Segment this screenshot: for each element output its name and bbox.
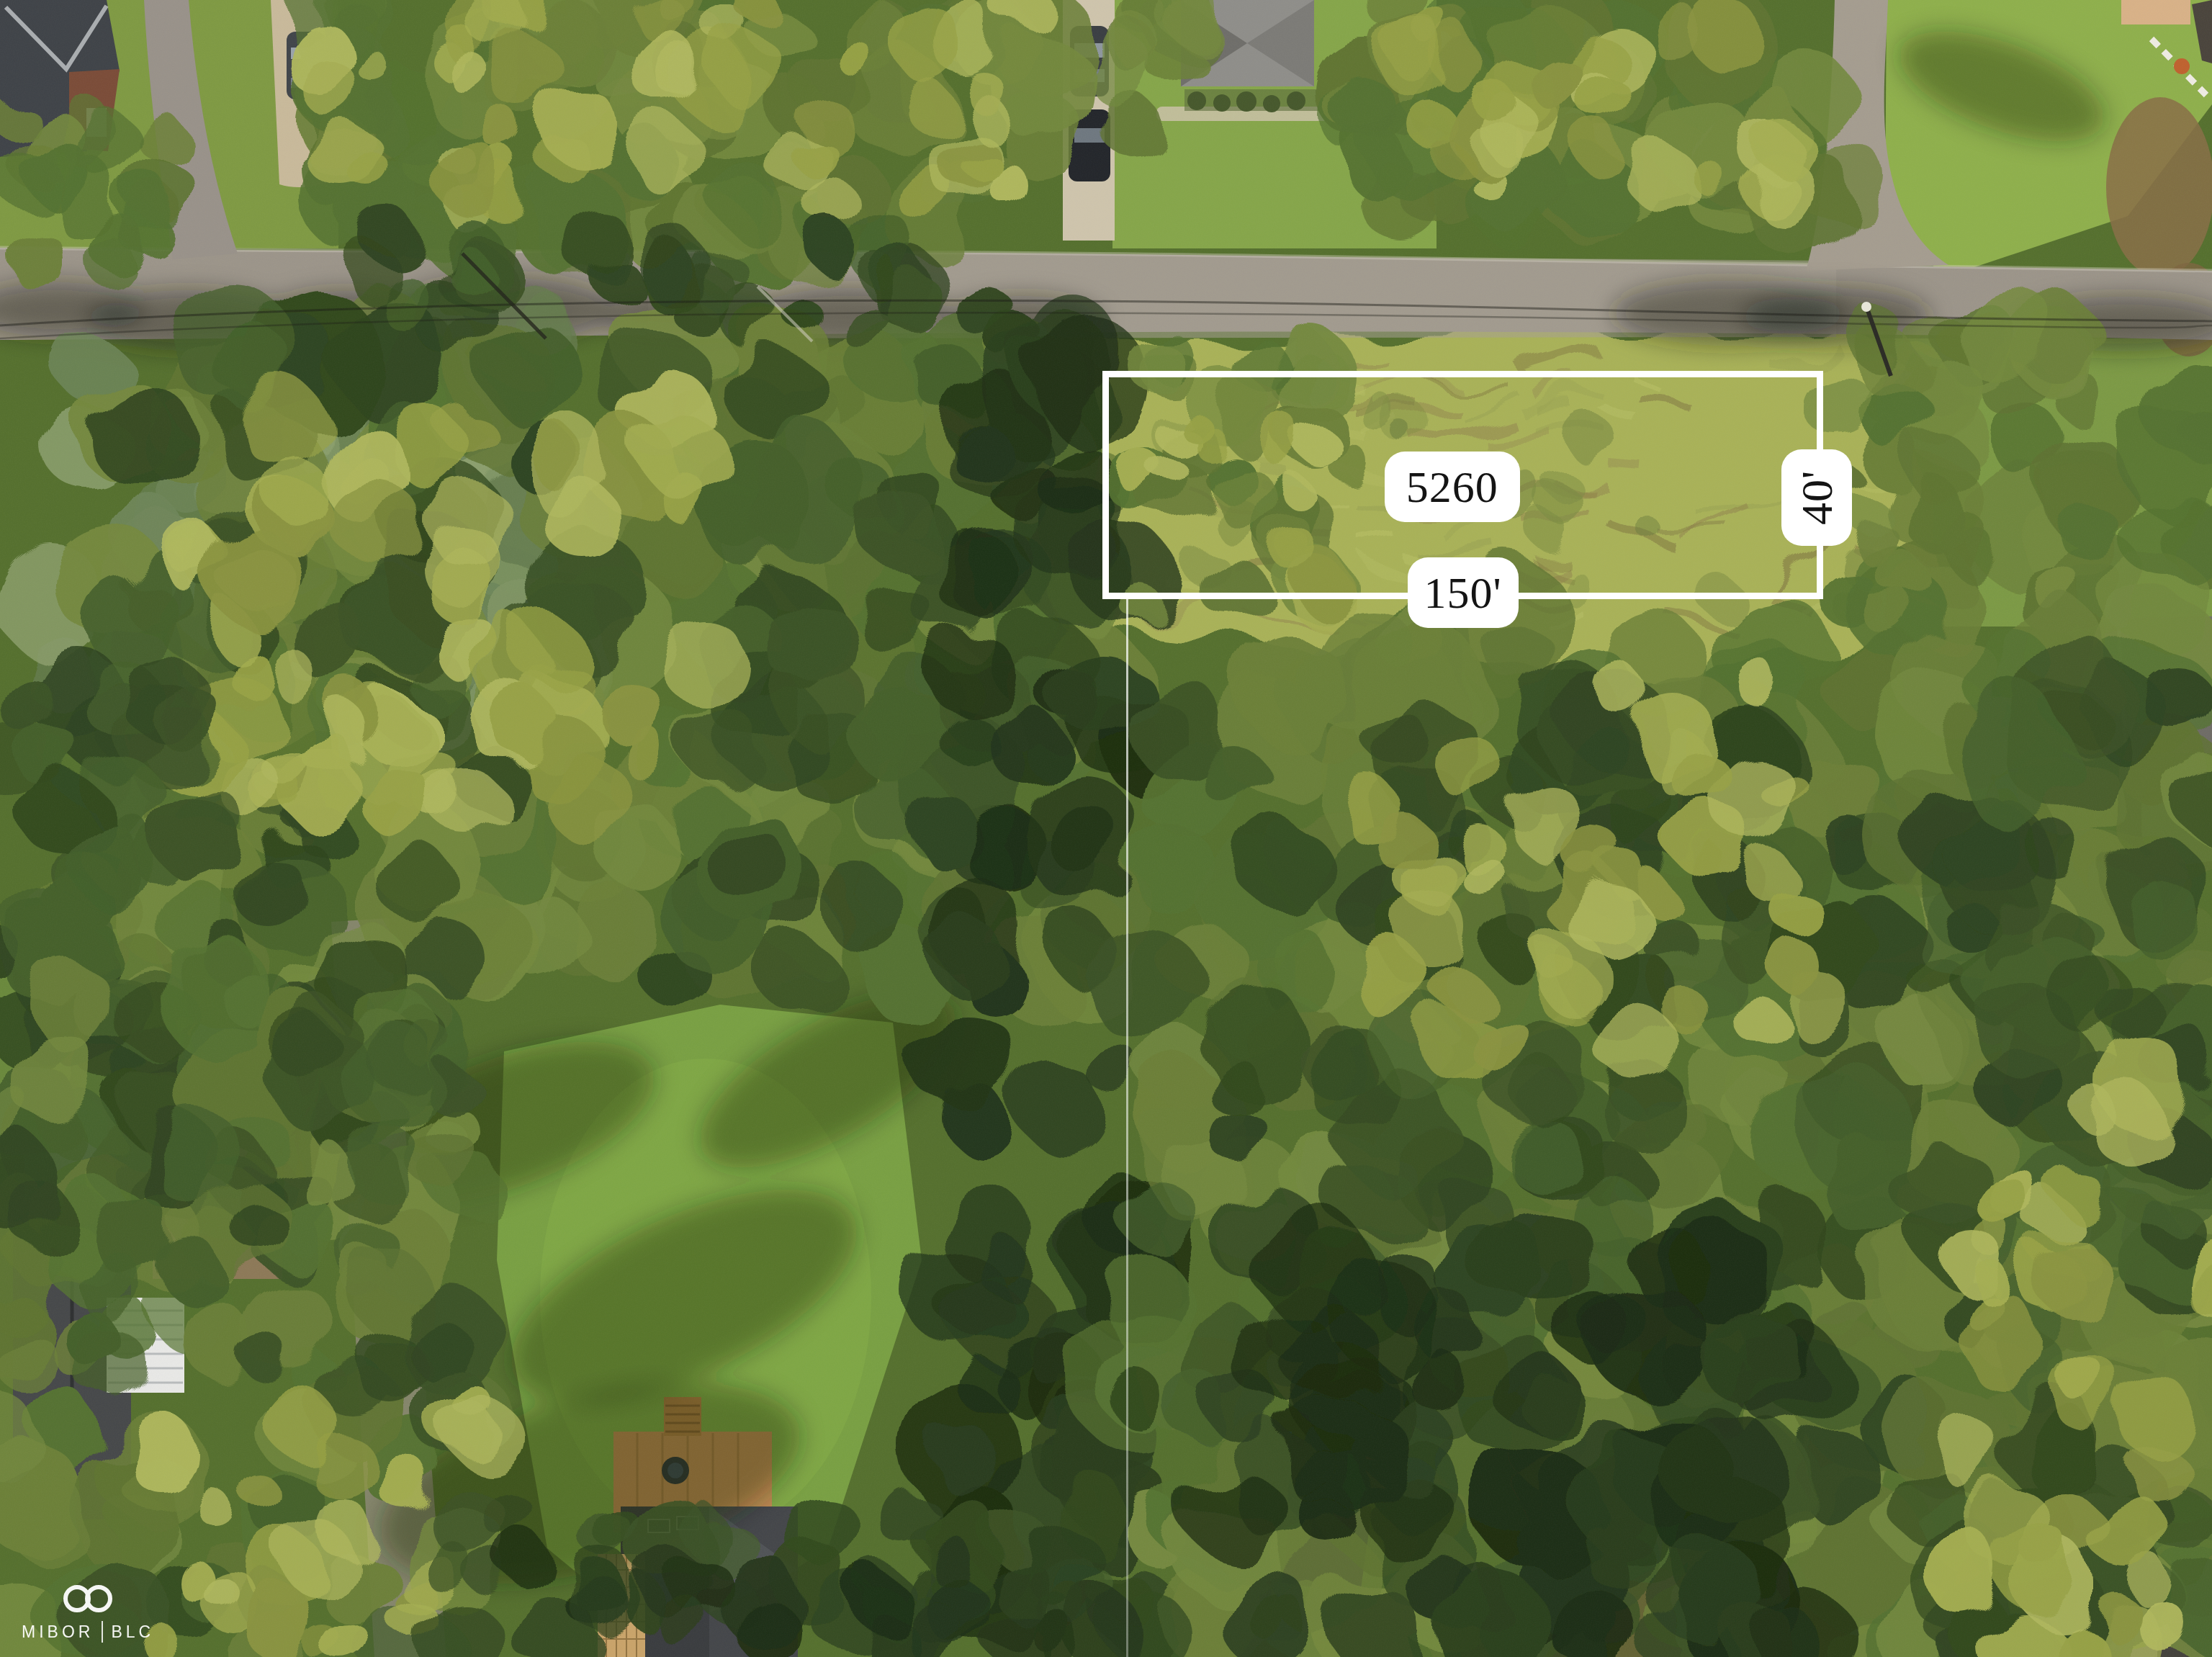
watermark-text: MIBOR BLC [22, 1621, 154, 1643]
watermark-brand-left: MIBOR [22, 1622, 94, 1642]
photo-grain [0, 0, 2212, 1657]
aerial-photo-view: { "overlay": { "parcel_number": "5260", … [0, 0, 2212, 1657]
infinity-icon [57, 1583, 119, 1615]
watermark-divider [102, 1621, 103, 1643]
mibor-blc-watermark: MIBOR BLC [22, 1583, 154, 1643]
aerial-photo-svg [0, 0, 2212, 1657]
watermark-brand-right: BLC [111, 1622, 154, 1642]
aerial-photo [0, 0, 2212, 1657]
